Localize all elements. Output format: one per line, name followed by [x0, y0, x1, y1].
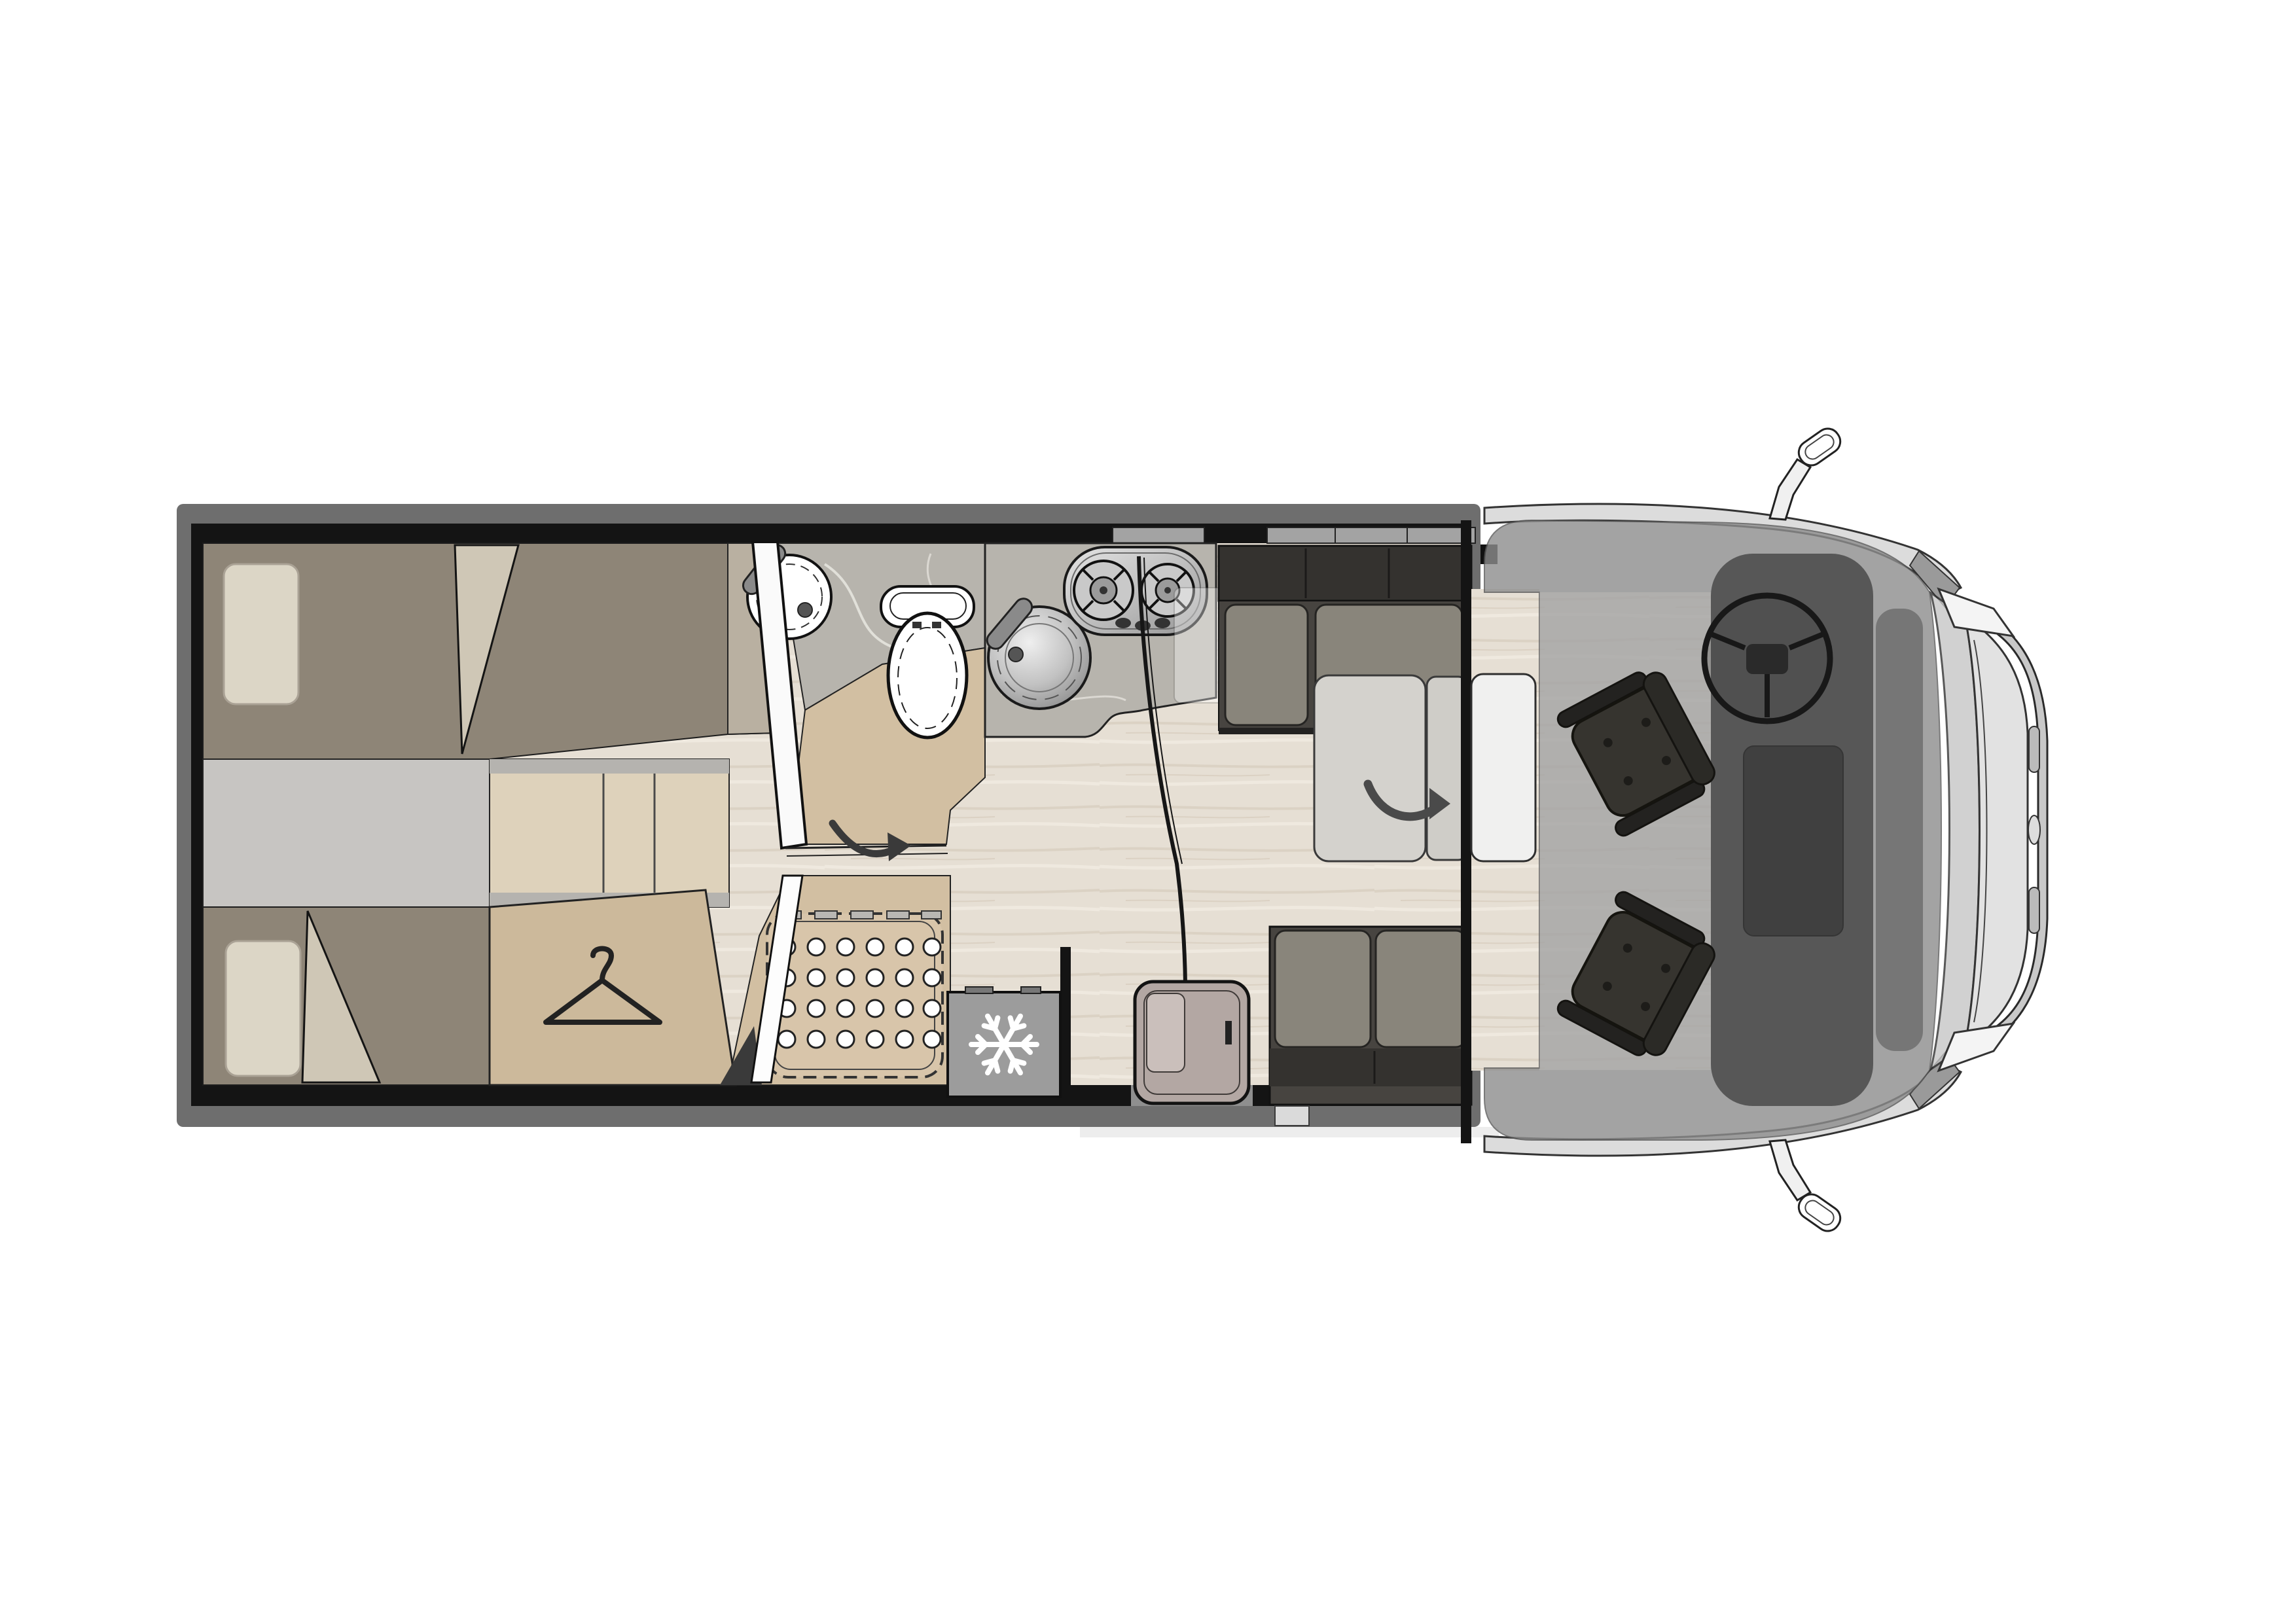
cab-bulkhead-wall	[1461, 520, 1471, 1143]
bed-aisle	[203, 759, 490, 907]
basin-drain	[798, 603, 812, 617]
cab-console	[1744, 746, 1843, 936]
grille	[2028, 726, 2040, 933]
door-handle	[1225, 1021, 1232, 1044]
pillow-bottom	[226, 941, 300, 1076]
rear-bedroom	[203, 543, 776, 1085]
vehicle-cab	[1471, 424, 2047, 1236]
mirror-top	[1770, 424, 1845, 520]
pillow-top	[224, 564, 298, 704]
entry-step	[1275, 1106, 1309, 1126]
table-extension	[1471, 674, 1535, 861]
mirror-bottom	[1770, 1140, 1845, 1236]
dinette-window	[1267, 527, 1475, 543]
bench-front	[1270, 927, 1471, 1105]
kitchen-window	[1113, 527, 1204, 543]
bed-steps-chest	[490, 759, 729, 907]
ground-shadow	[1080, 1127, 1499, 1137]
dashboard	[1876, 609, 1923, 1051]
steering-wheel	[1704, 596, 1830, 721]
wardrobe	[490, 890, 736, 1085]
burner-left	[1074, 561, 1133, 620]
folding-table	[1314, 675, 1467, 861]
windows	[1113, 527, 1475, 543]
door-window	[1147, 993, 1185, 1072]
floorplan-canvas	[0, 0, 2296, 1623]
